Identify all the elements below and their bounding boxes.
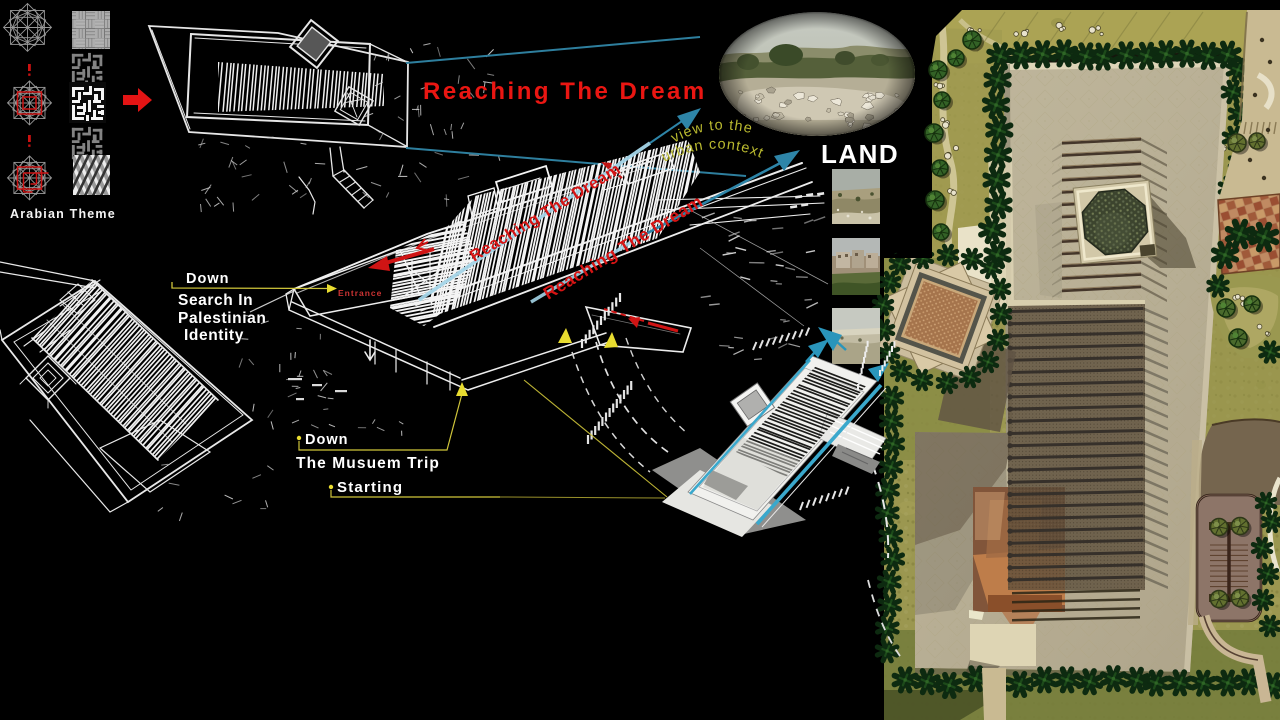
svg-text:Search In: Search In <box>178 292 253 309</box>
svg-text:Down: Down <box>305 432 348 448</box>
svg-text:LAND: LAND <box>821 139 899 169</box>
svg-text:Down: Down <box>186 271 229 287</box>
svg-text:Palestinian: Palestinian <box>178 310 266 327</box>
svg-text:Entrance: Entrance <box>338 288 382 298</box>
svg-text:Arabian Theme: Arabian Theme <box>10 207 116 221</box>
svg-text:The Musuem Trip: The Musuem Trip <box>296 455 440 472</box>
svg-text:Reaching The Dream: Reaching The Dream <box>423 78 707 105</box>
svg-text:Identity: Identity <box>184 327 244 344</box>
svg-text:Starting: Starting <box>337 479 403 496</box>
